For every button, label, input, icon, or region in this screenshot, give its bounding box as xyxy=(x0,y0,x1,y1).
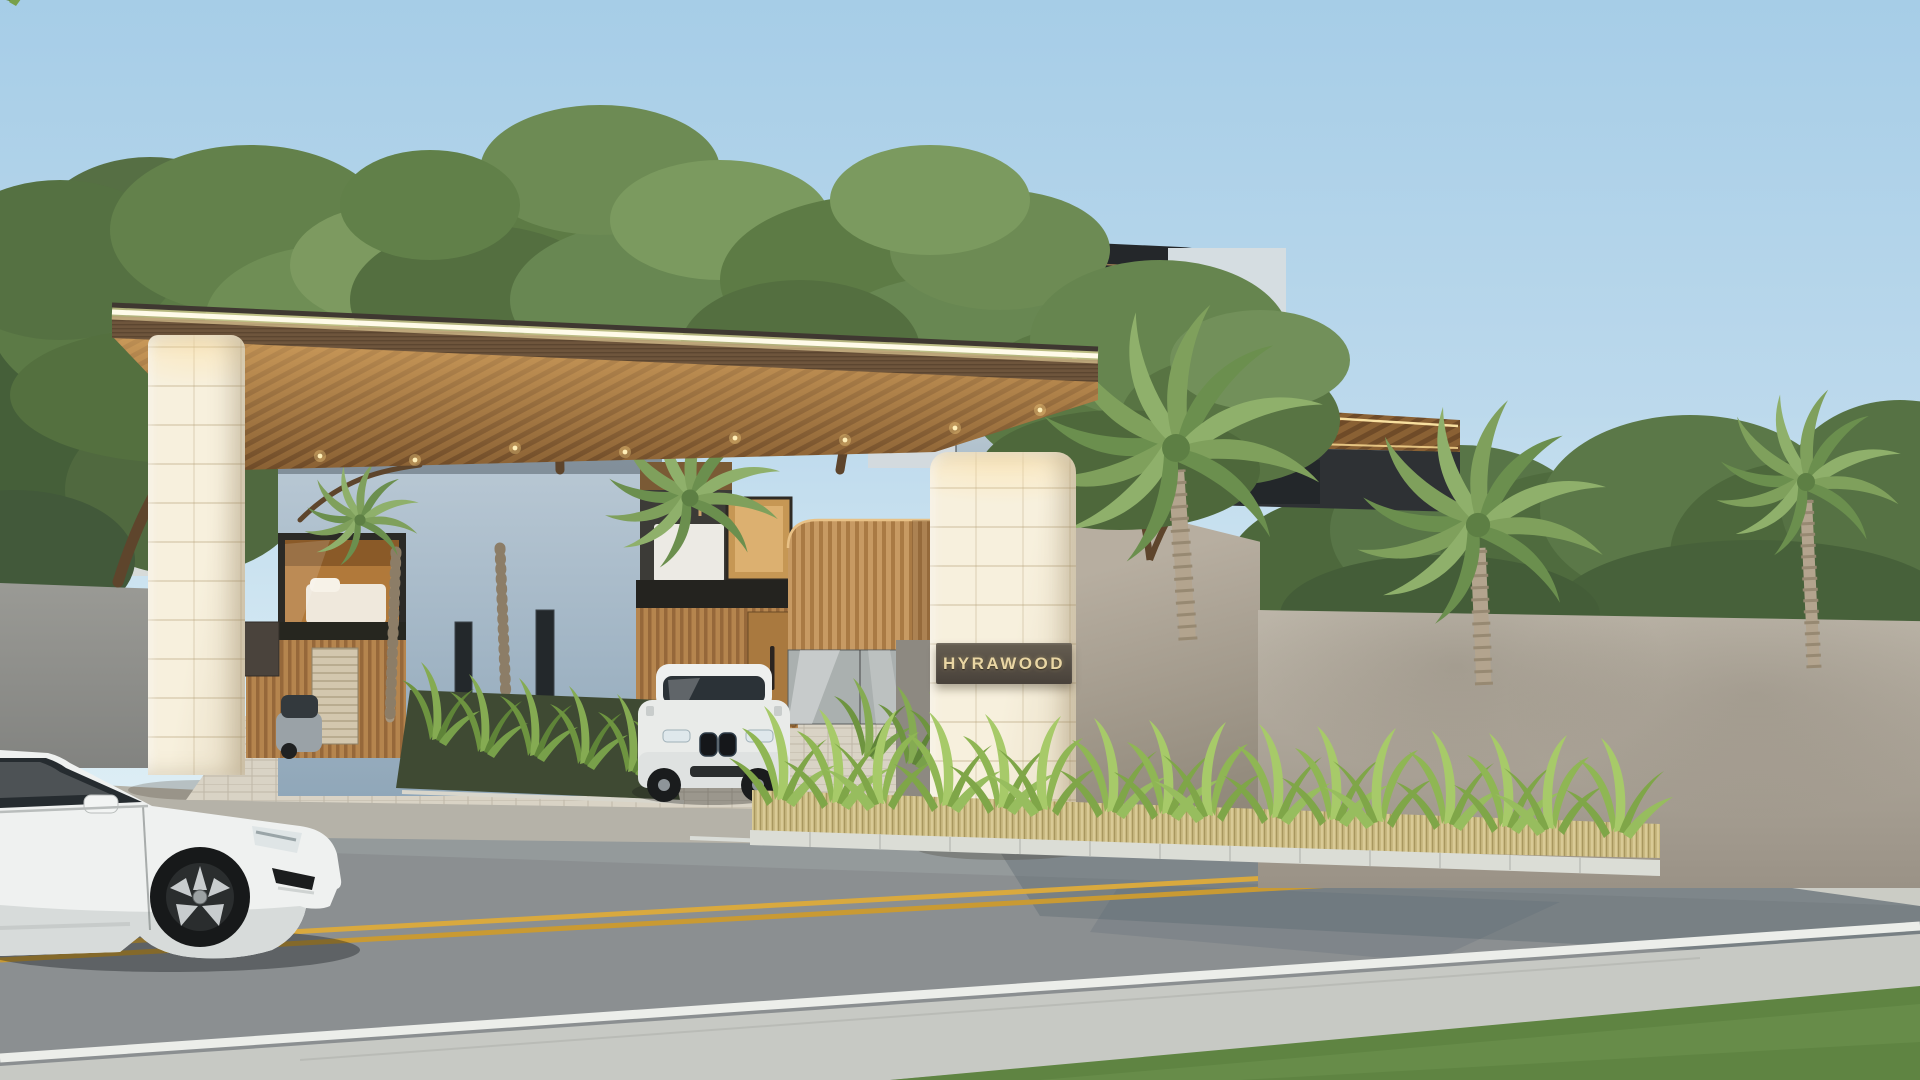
scene-canvas: HYRAWOOD xyxy=(0,0,1920,1080)
sedan-front-wheel xyxy=(150,847,250,947)
white-sedan xyxy=(0,0,1920,1080)
sedan-mirror-icon xyxy=(84,795,118,813)
